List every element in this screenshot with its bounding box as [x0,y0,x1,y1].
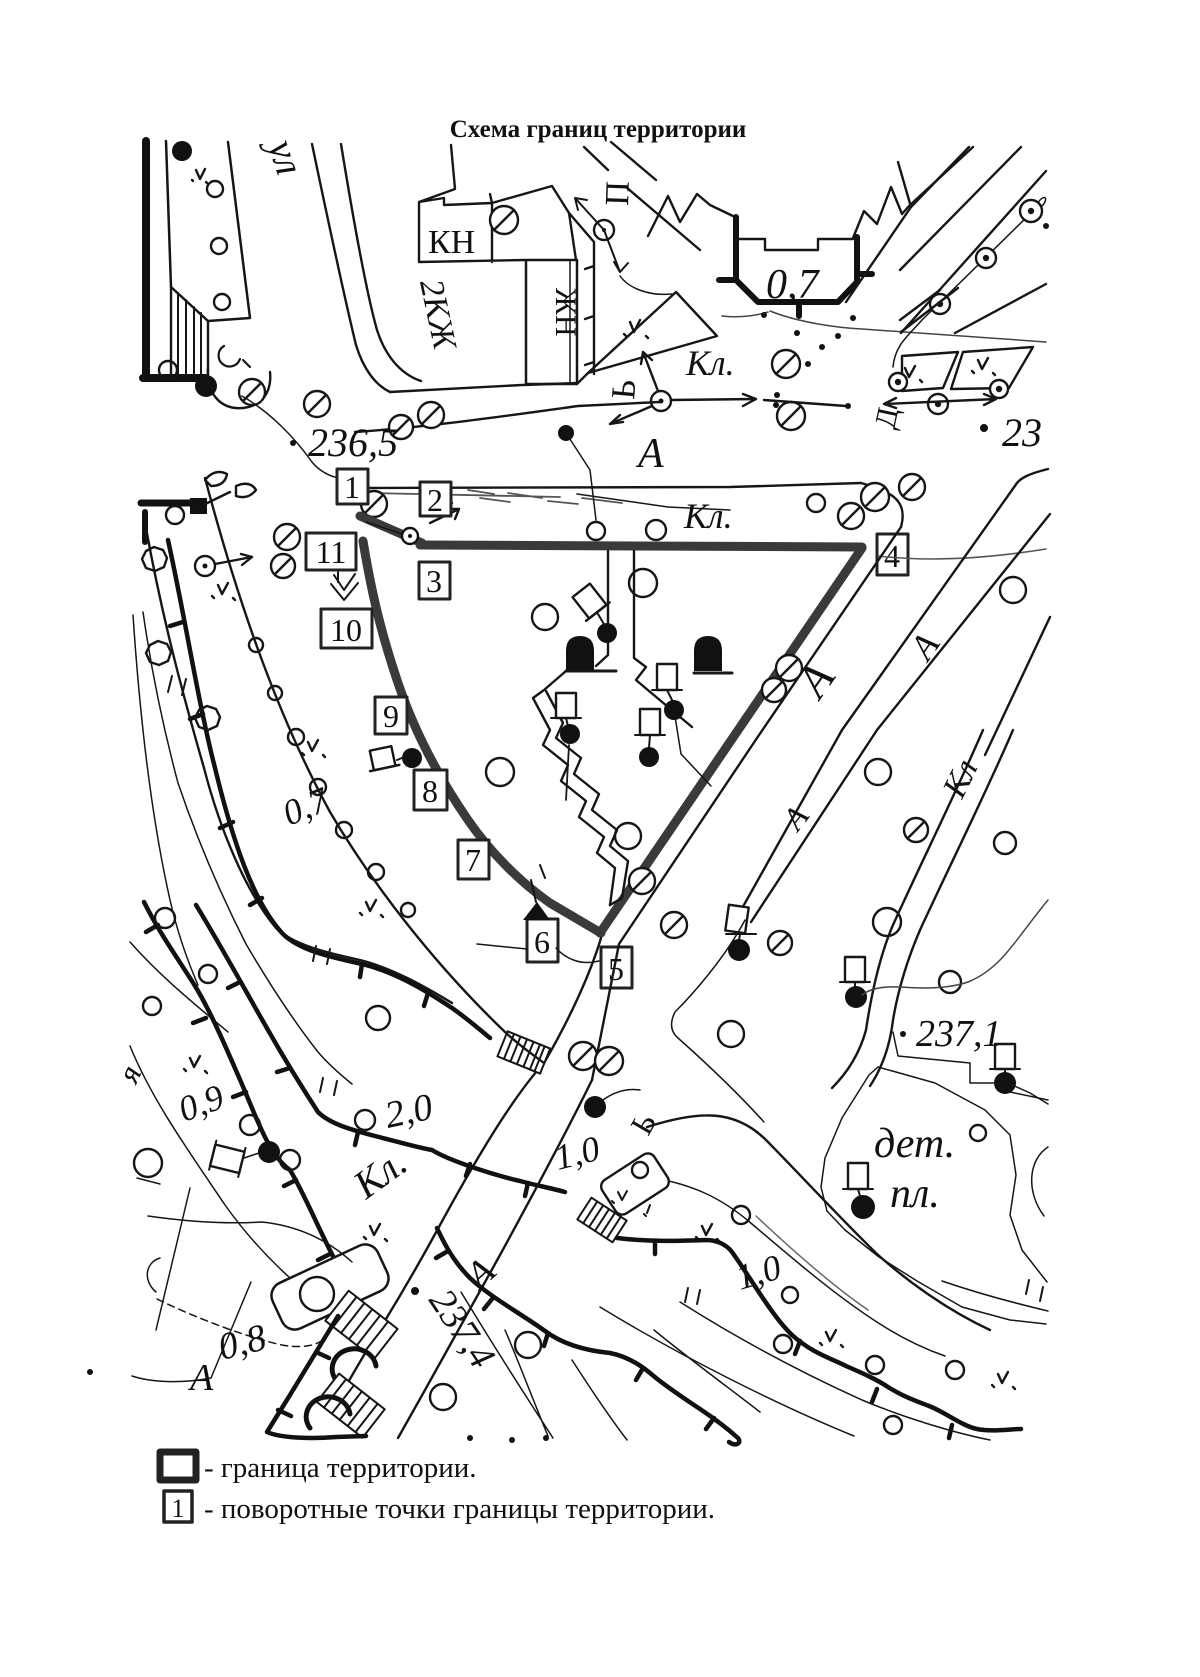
svg-text:2КЖ: 2КЖ [412,276,463,355]
svg-text:дет.: дет. [874,1121,955,1167]
svg-text:пл.: пл. [890,1171,940,1217]
svg-text:0,9: 0,9 [173,1077,229,1130]
svg-text:2,0: 2,0 [381,1086,436,1137]
svg-text:ул: ул [258,130,313,180]
svg-text:236,5: 236,5 [308,420,398,465]
svg-text:Кл.: Кл. [683,496,733,536]
svg-text:Кл.: Кл. [344,1139,415,1208]
svg-text:А: А [635,431,664,477]
svg-text:6: 6 [534,924,550,960]
svg-text:237,1: 237,1 [916,1013,1002,1055]
svg-text:Кл: Кл [935,754,985,805]
svg-text:11: 11 [316,534,347,570]
svg-text:7: 7 [465,842,481,878]
svg-text:1: 1 [344,469,360,505]
svg-text:Схема границ территории: Схема границ территории [450,116,747,143]
svg-text:я: я [109,1059,148,1089]
svg-text:- граница территории.: - граница территории. [204,1452,477,1484]
svg-text:- поворотные точки границы тер: - поворотные точки границы территории. [204,1493,715,1525]
svg-text:КН: КН [428,224,475,261]
svg-text:3: 3 [426,563,442,599]
svg-text:ЖН: ЖН [549,288,582,337]
svg-text:Д: Д [869,405,906,432]
svg-text:2: 2 [427,482,443,518]
svg-text:4: 4 [884,538,900,574]
svg-text:9: 9 [383,698,399,734]
svg-text:Ь: Ь [605,378,644,401]
svg-text:1: 1 [172,1494,185,1523]
svg-text:1,0: 1,0 [550,1128,603,1178]
svg-text:Кл.: Кл. [685,343,735,383]
svg-text:23: 23 [1002,410,1042,455]
svg-text:10: 10 [330,612,362,648]
svg-text:А: А [901,625,948,668]
svg-text:А: А [187,1357,214,1399]
svg-text:0,8: 0,8 [214,1316,270,1368]
svg-text:8: 8 [422,773,438,809]
svg-text:П: П [599,180,637,206]
svg-text:0,7: 0,7 [766,262,821,308]
